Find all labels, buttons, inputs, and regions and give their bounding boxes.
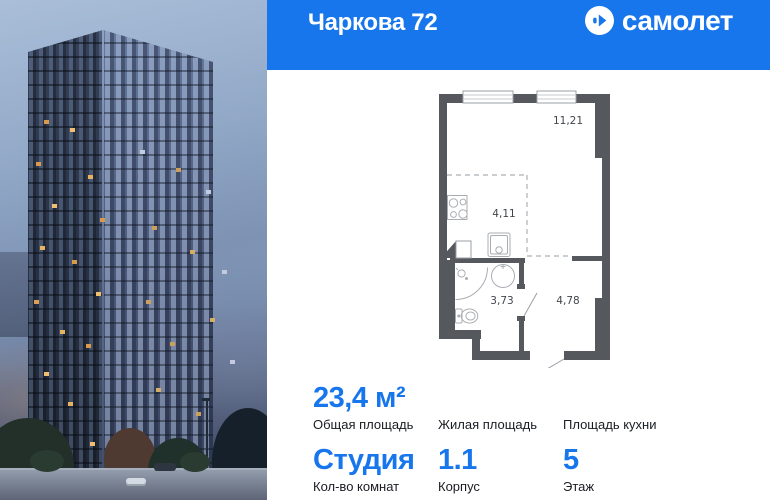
- living-area-label: Жилая площадь: [438, 417, 563, 432]
- shower-icon: [456, 268, 488, 300]
- listing-card: Чаркова 72 самолет: [0, 0, 770, 500]
- stat-floor: 5 Этаж: [563, 444, 688, 494]
- area-label-hallway: 4,78: [556, 295, 579, 307]
- lit-windows-right: [0, 0, 5, 4]
- stat-total-area: 23,4 м² Общая площадь: [313, 382, 438, 432]
- sink-icon: [492, 264, 515, 288]
- stove-icon: [448, 196, 468, 220]
- samolet-logo: самолет: [585, 6, 733, 35]
- kitchen-area-label: Площадь кухни: [563, 417, 688, 432]
- plan-walls: [439, 94, 610, 360]
- stat-kitchen-area: Площадь кухни: [563, 382, 688, 432]
- car: [126, 478, 146, 486]
- apartment-panel: Чаркова 72 самолет: [267, 0, 770, 500]
- total-area-label: Общая площадь: [313, 417, 438, 432]
- stat-rooms: Студия Кол-во комнат: [313, 444, 438, 494]
- floor-label: Этаж: [563, 479, 688, 494]
- bush: [30, 450, 64, 472]
- samolet-logo-icon: [585, 6, 614, 35]
- stat-living-area: Жилая площадь: [438, 382, 563, 432]
- living-area-value: [438, 382, 563, 414]
- bush: [180, 452, 210, 472]
- floor-value: 5: [563, 444, 688, 476]
- washing-machine-icon: [488, 233, 510, 257]
- stat-building: 1.1 Корпус: [438, 444, 563, 494]
- total-area-value: 23,4 м²: [313, 382, 438, 414]
- rooms-label: Кол-во комнат: [313, 479, 438, 494]
- car: [154, 463, 176, 471]
- area-label-bathroom: 3,73: [490, 295, 513, 307]
- area-label-kitchen: 4,11: [492, 208, 515, 220]
- rooms-value: Студия: [313, 444, 438, 476]
- door-leaf: [456, 241, 471, 258]
- floor-plan: 11,21 4,11 3,73 4,78: [426, 88, 612, 368]
- kitchen-area-value: [563, 382, 688, 414]
- building-corner-edge: [102, 30, 104, 500]
- brand-name: самолет: [622, 6, 733, 35]
- building-photo: [0, 0, 267, 500]
- area-label-main-room: 11,21: [553, 115, 583, 127]
- building-label: Корпус: [438, 479, 563, 494]
- project-title: Чаркова 72: [308, 9, 437, 37]
- building-value: 1.1: [438, 444, 563, 476]
- toilet-icon: [456, 309, 478, 323]
- header-bar: Чаркова 72 самолет: [267, 0, 770, 70]
